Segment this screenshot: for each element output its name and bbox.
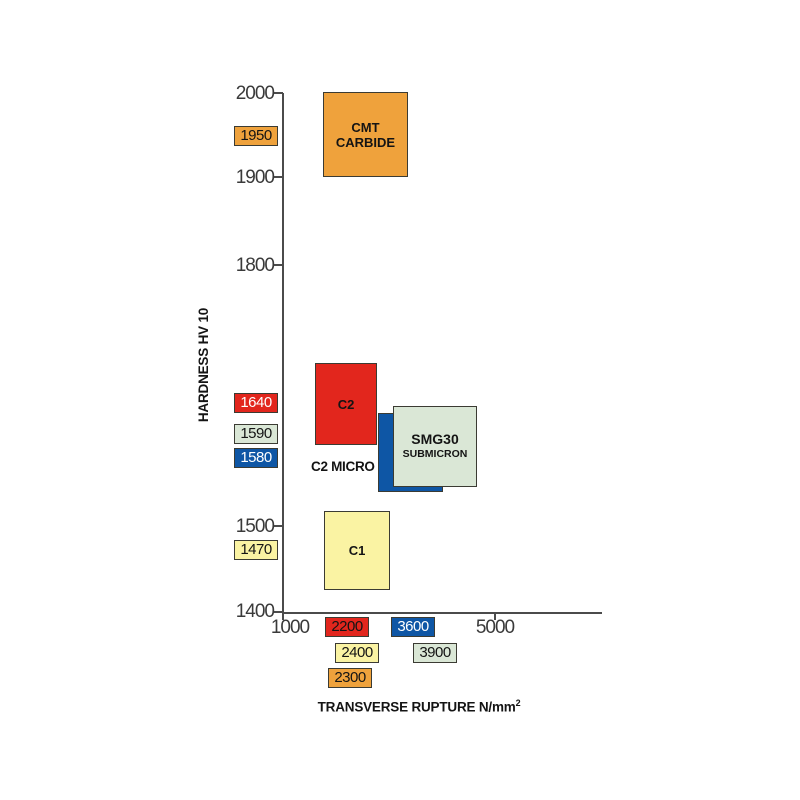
region-label-c2: C2 <box>338 397 355 412</box>
region-label-smg30-line1: SMG30 <box>411 432 458 447</box>
hardness-badge-1470: 1470 <box>234 540 278 560</box>
region-smg30-submicron: SMG30 SUBMICRON <box>393 406 477 487</box>
y-tick-label: 2000 <box>198 84 274 104</box>
region-label-smg30-line2: SUBMICRON <box>403 447 468 462</box>
y-tick-mark <box>273 525 283 527</box>
region-label-cmt-line1: CMT <box>351 120 379 135</box>
x-axis-title: TRANSVERSE RUPTURE N/mm2 <box>289 698 549 715</box>
y-tick-mark <box>273 92 283 94</box>
region-label-c1: C1 <box>349 543 366 558</box>
hardness-badge-1580: 1580 <box>234 448 278 468</box>
x-axis-title-superscript: 2 <box>516 698 521 708</box>
y-axis-line <box>282 93 284 614</box>
y-tick-label: 1800 <box>198 256 274 276</box>
region-c2: C2 <box>315 363 377 445</box>
y-tick-mark <box>273 264 283 266</box>
y-tick-label: 1900 <box>198 168 274 188</box>
region-label-c2-micro: C2 MICRO <box>311 459 375 474</box>
rupture-badge-3900: 3900 <box>413 643 457 663</box>
y-tick-label: 1500 <box>198 517 274 537</box>
hardness-badge-1950: 1950 <box>234 126 278 146</box>
rupture-badge-2300: 2300 <box>328 668 372 688</box>
region-cmt-carbide: CMT CARBIDE <box>323 92 408 177</box>
y-tick-mark <box>273 176 283 178</box>
x-axis-line <box>282 612 602 614</box>
rupture-badge-2200: 2200 <box>325 617 369 637</box>
rupture-badge-3600: 3600 <box>391 617 435 637</box>
x-axis-title-text: TRANSVERSE RUPTURE N/mm <box>318 700 516 715</box>
x-tick-label: 5000 <box>459 618 531 638</box>
hardness-badge-1640: 1640 <box>234 393 278 413</box>
x-tick-label: 1000 <box>254 618 326 638</box>
region-label-cmt-line2: CARBIDE <box>336 135 395 150</box>
hardness-badge-1590: 1590 <box>234 424 278 444</box>
y-axis-title: HARDNESS HV 10 <box>196 295 216 435</box>
rupture-badge-2400: 2400 <box>335 643 379 663</box>
region-c1: C1 <box>324 511 390 590</box>
chart-canvas: HARDNESS HV 10 TRANSVERSE RUPTURE N/mm2 … <box>0 0 800 800</box>
